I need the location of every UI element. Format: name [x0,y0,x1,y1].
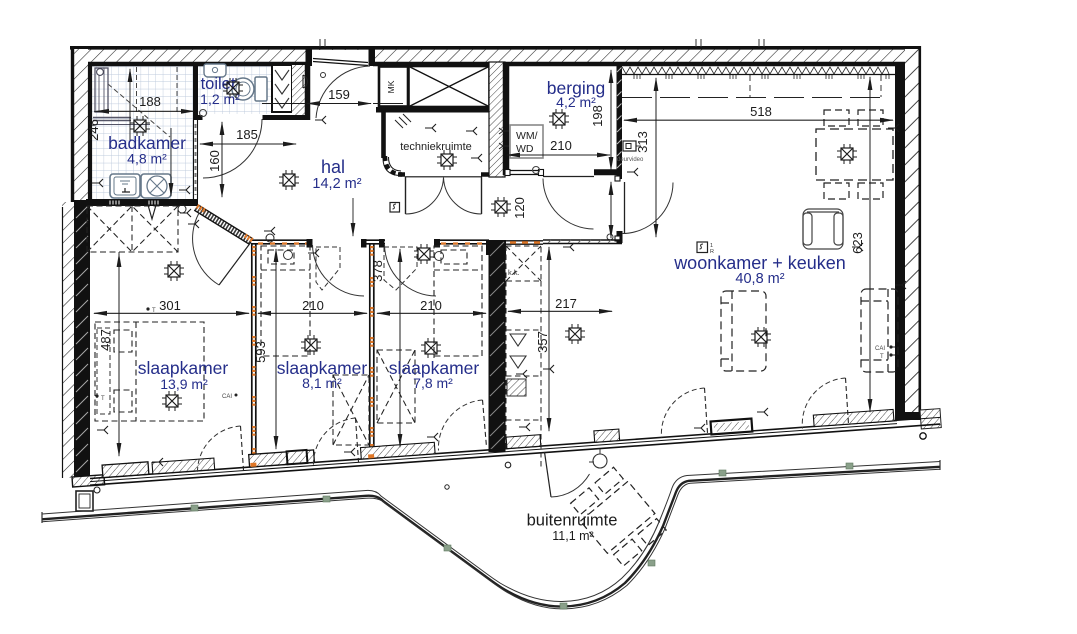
svg-text:487: 487 [98,329,113,351]
svg-text:301: 301 [159,298,181,313]
svg-text:210: 210 [420,298,442,313]
svg-text:14,2 m²: 14,2 m² [312,176,361,192]
svg-text:378: 378 [370,260,385,282]
svg-text:7,8 m²: 7,8 m² [413,375,453,391]
svg-text:188: 188 [139,94,161,109]
svg-text:CAI: CAI [222,394,232,400]
svg-text:246: 246 [86,119,101,141]
svg-text:T: T [880,354,884,360]
svg-text:185: 185 [236,127,258,142]
svg-text:217: 217 [555,296,577,311]
svg-text:T: T [152,308,156,314]
svg-text:11,1 m²: 11,1 m² [552,529,593,543]
svg-text:313: 313 [635,131,650,153]
svg-text:8,1 m²: 8,1 m² [302,375,342,391]
svg-text:120: 120 [512,197,527,219]
svg-text:160: 160 [207,150,222,172]
svg-text:CAI: CAI [875,346,885,352]
svg-text:deurvideo: deurvideo [617,157,644,163]
svg-text:WM/: WM/ [516,130,538,142]
svg-text:518: 518 [750,104,772,119]
svg-text:159: 159 [328,87,350,102]
svg-text:R: R [710,249,714,255]
svg-text:MK: MK [386,80,396,93]
svg-text:woonkamer + keuken: woonkamer + keuken [673,253,846,273]
svg-text:40,8 m²: 40,8 m² [735,271,784,287]
svg-text:slaapkamer: slaapkamer [138,358,229,378]
svg-text:buitenruimte: buitenruimte [527,512,618,530]
svg-text:13,9 m²: 13,9 m² [160,376,208,392]
svg-text:357: 357 [535,331,550,353]
svg-text:T: T [101,396,105,402]
svg-text:techniekruimte: techniekruimte [400,141,472,153]
svg-text:198: 198 [590,105,605,127]
svg-text:210: 210 [302,298,324,313]
svg-text:210: 210 [550,138,572,153]
svg-text:k.k.: k.k. [508,268,520,277]
svg-text:WD: WD [516,143,534,155]
svg-text:hal: hal [321,157,345,177]
svg-text:4,8 m²: 4,8 m² [127,151,167,167]
svg-text:593: 593 [253,341,268,363]
